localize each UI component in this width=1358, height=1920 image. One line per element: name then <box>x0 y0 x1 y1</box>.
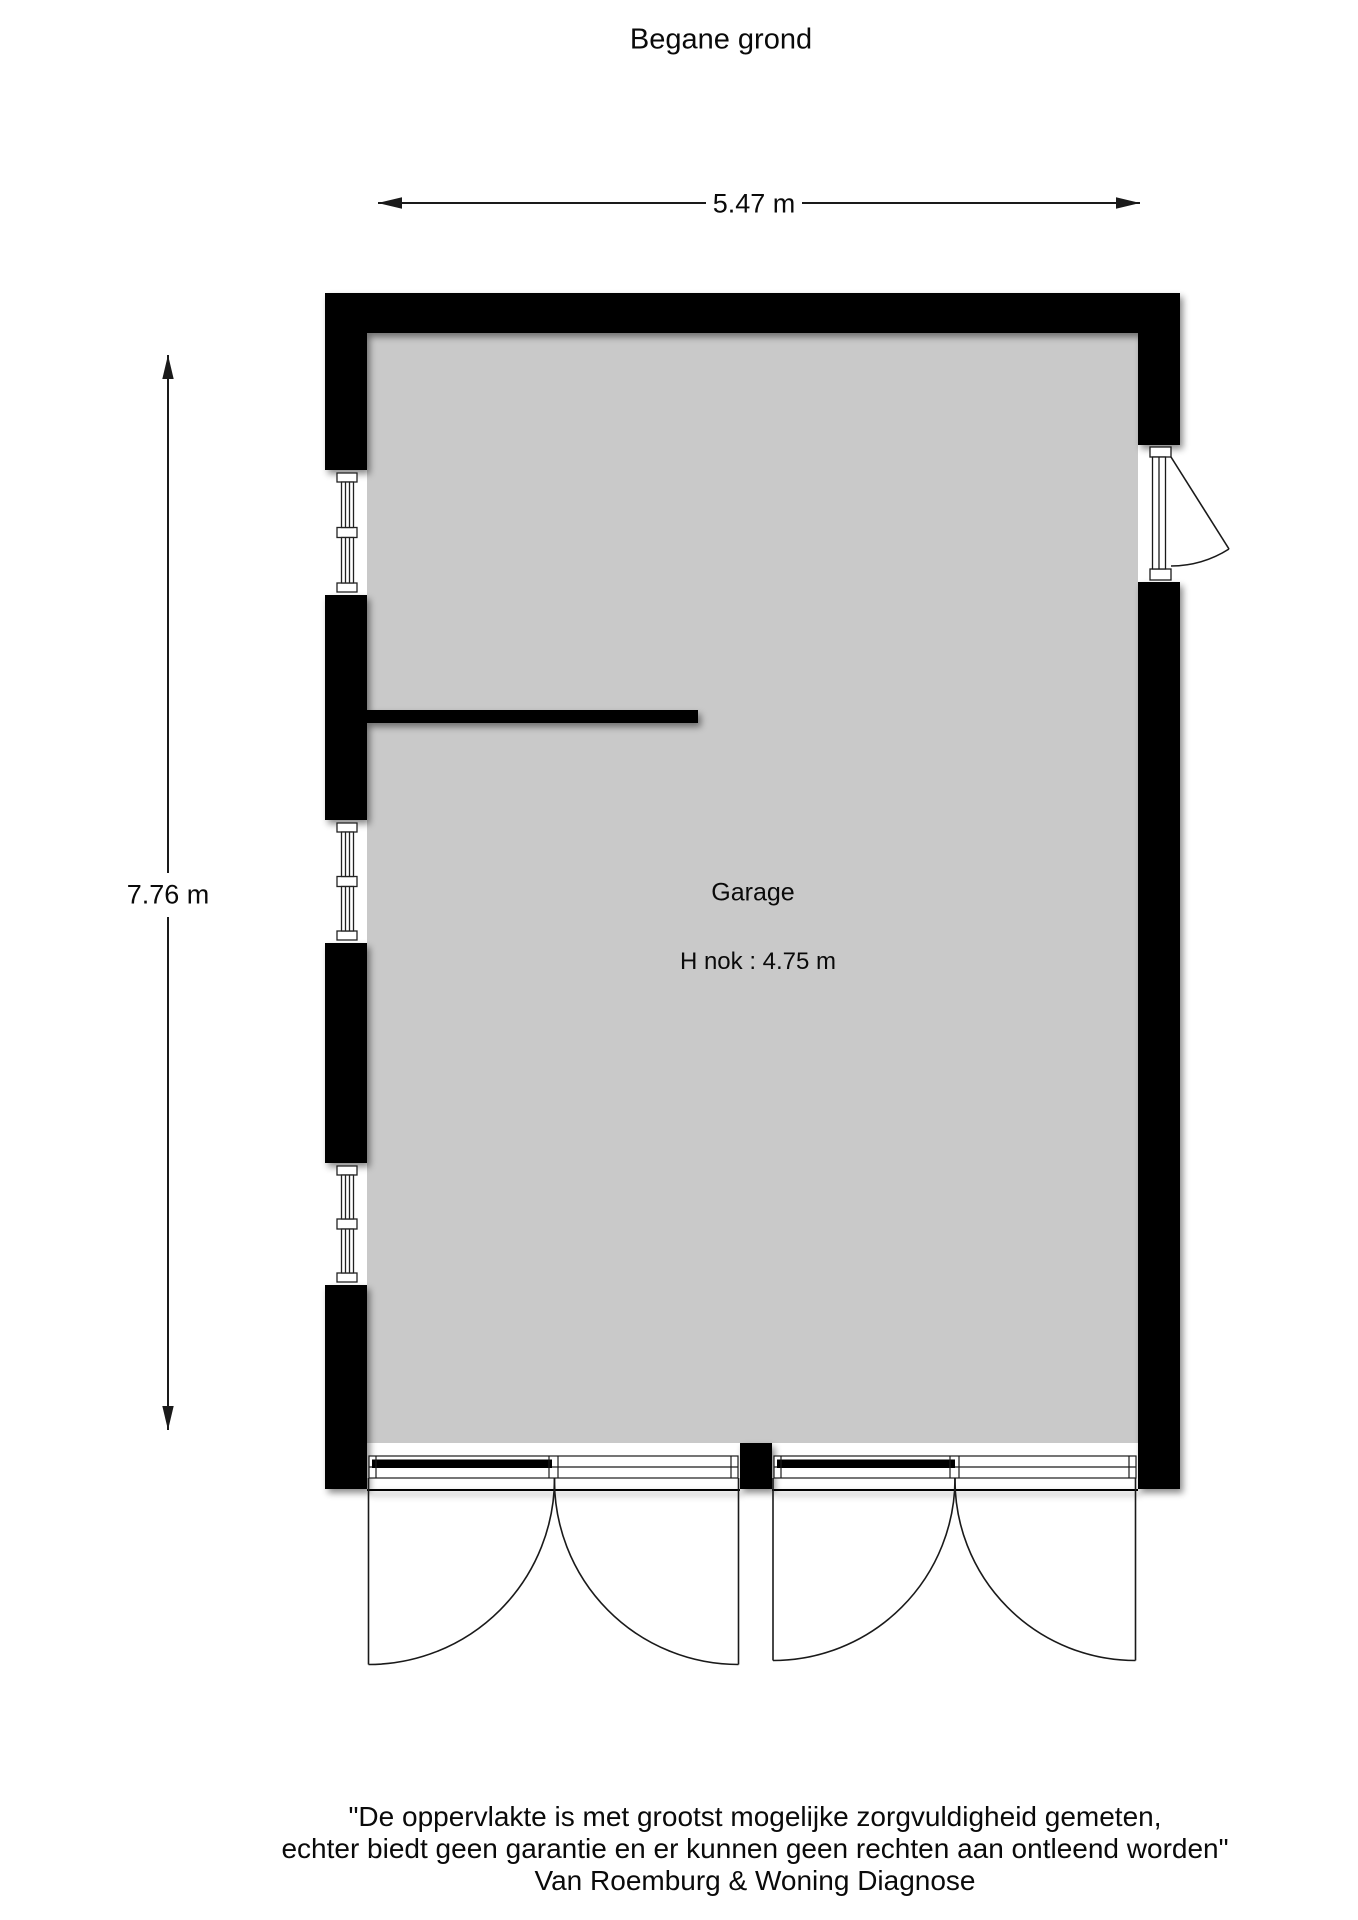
disclaimer-line-2: echter biedt geen garantie en er kunnen … <box>281 1833 1228 1865</box>
door-leaf <box>1171 457 1229 549</box>
garage-door-right-symbol <box>773 1456 1136 1661</box>
room-ridge-height-label: H nok : 4.75 m <box>680 948 836 976</box>
arrowhead-up <box>162 355 173 379</box>
floor-plan-canvas: Begane grond 5.47 m 7.76 m Garage H nok … <box>0 0 1358 1920</box>
arrowhead-down <box>162 1406 173 1430</box>
window-2-symbol <box>337 823 357 940</box>
door-swing-arc <box>1171 549 1229 566</box>
disclaimer: "De oppervlakte is met grootst mogelijke… <box>281 1801 1228 1897</box>
width-dimension-label: 5.47 m <box>707 189 802 220</box>
side-door-symbol <box>1150 447 1229 580</box>
door-swing-arc <box>955 1479 1136 1661</box>
garage-door-left-symbol <box>369 1456 739 1665</box>
room-label: Garage <box>711 879 794 908</box>
page-title: Begane grond <box>630 24 812 57</box>
door-swing-arc <box>554 1479 738 1665</box>
door-swing-arc <box>773 1479 955 1661</box>
disclaimer-line-3: Van Roemburg & Woning Diagnose <box>281 1865 1228 1897</box>
arrowhead-right <box>1116 197 1140 208</box>
height-dimension-label: 7.76 m <box>121 880 216 911</box>
disclaimer-line-1: "De oppervlakte is met grootst mogelijke… <box>281 1801 1228 1833</box>
window-3-symbol <box>337 1166 357 1282</box>
door-swing-arc <box>369 1479 555 1665</box>
window-1-symbol <box>337 473 357 592</box>
arrowhead-left <box>378 197 402 208</box>
